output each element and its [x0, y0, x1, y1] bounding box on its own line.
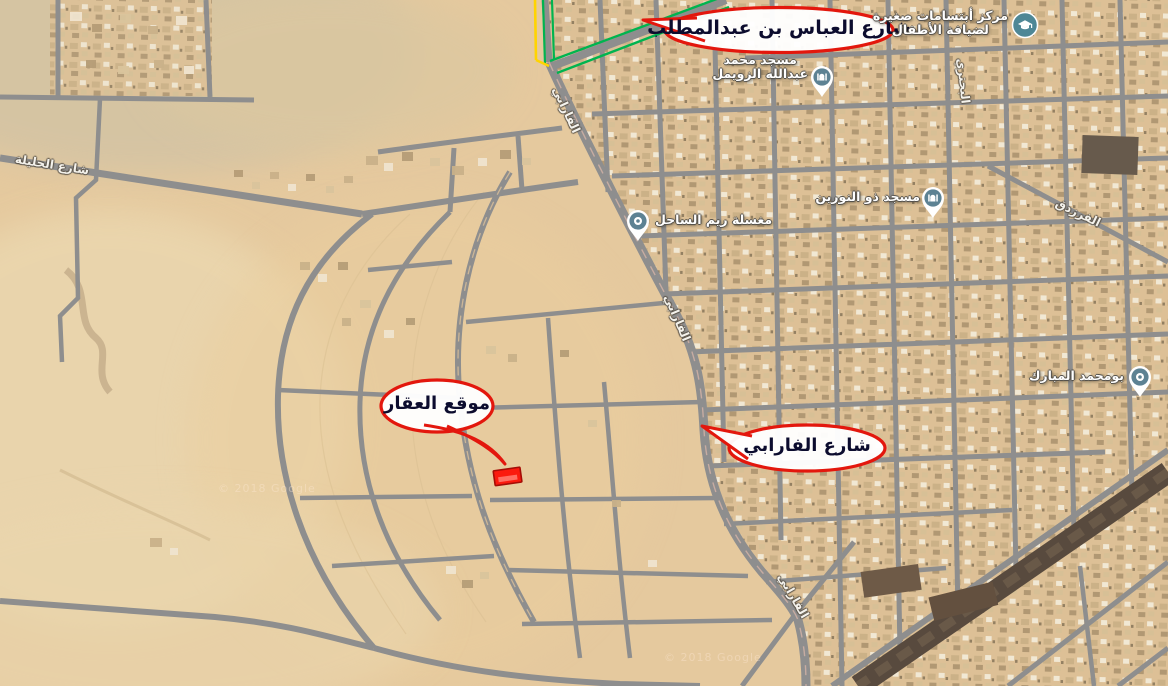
satellite-map[interactable]: شارع العباس بن عبدالمطلب موقع العقار شار… — [0, 0, 1168, 686]
poi-kids-center-label: مركز أبتسامات صغيرة لضيافة الأطفال — [873, 9, 1008, 37]
map-graphics — [0, 0, 1168, 686]
callout-abbas-street-label: شارع العباس بن عبدالمطلب — [647, 19, 911, 39]
callout-property-label: موقع العقار — [384, 395, 490, 414]
poi-mosque-zuwaimil-label: مسجد محمد عبدالله الزويمل — [712, 53, 808, 81]
poi-bumohammad-label: بومحمد المبارك — [1029, 369, 1124, 383]
yellow-route-highlight — [535, 0, 536, 60]
callout-farabi-street-label: شارع الفارابي — [743, 437, 871, 456]
poi-mosque-nurain-label: مسجد ذو النورين — [815, 190, 920, 204]
poi-laundry-label: مغسلة ريم الساحل — [655, 213, 772, 227]
school-icon[interactable] — [1013, 13, 1038, 38]
property-marker[interactable] — [493, 467, 522, 486]
copyright-watermark: © 2018 Google — [664, 652, 762, 664]
copyright-watermark: © 2018 Google — [218, 483, 316, 495]
